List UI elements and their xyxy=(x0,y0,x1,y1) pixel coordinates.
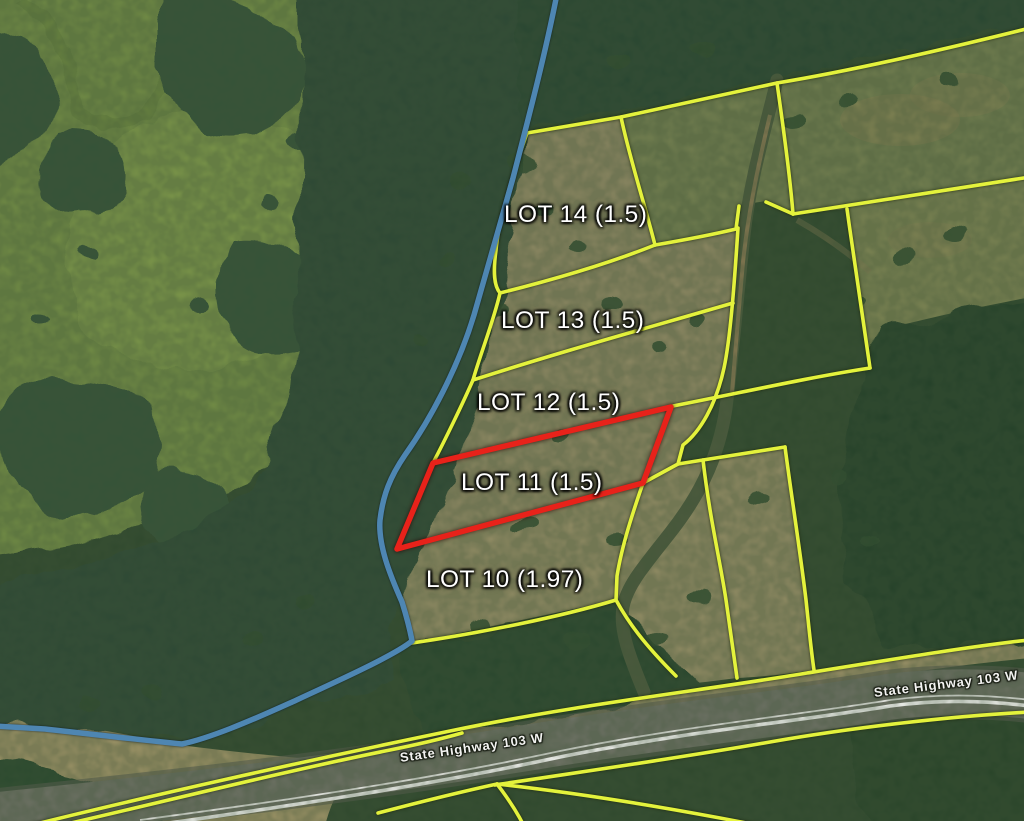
parcel-satellite-map: LOT 14 (1.5) LOT 13 (1.5) LOT 12 (1.5) L… xyxy=(0,0,1024,821)
lot-label-14: LOT 14 (1.5) xyxy=(504,201,647,229)
lot-label-13: LOT 13 (1.5) xyxy=(501,307,644,335)
lot-label-11: LOT 11 (1.5) xyxy=(461,469,602,497)
lot-label-10: LOT 10 (1.97) xyxy=(426,566,583,594)
lot-label-12: LOT 12 (1.5) xyxy=(477,389,620,417)
